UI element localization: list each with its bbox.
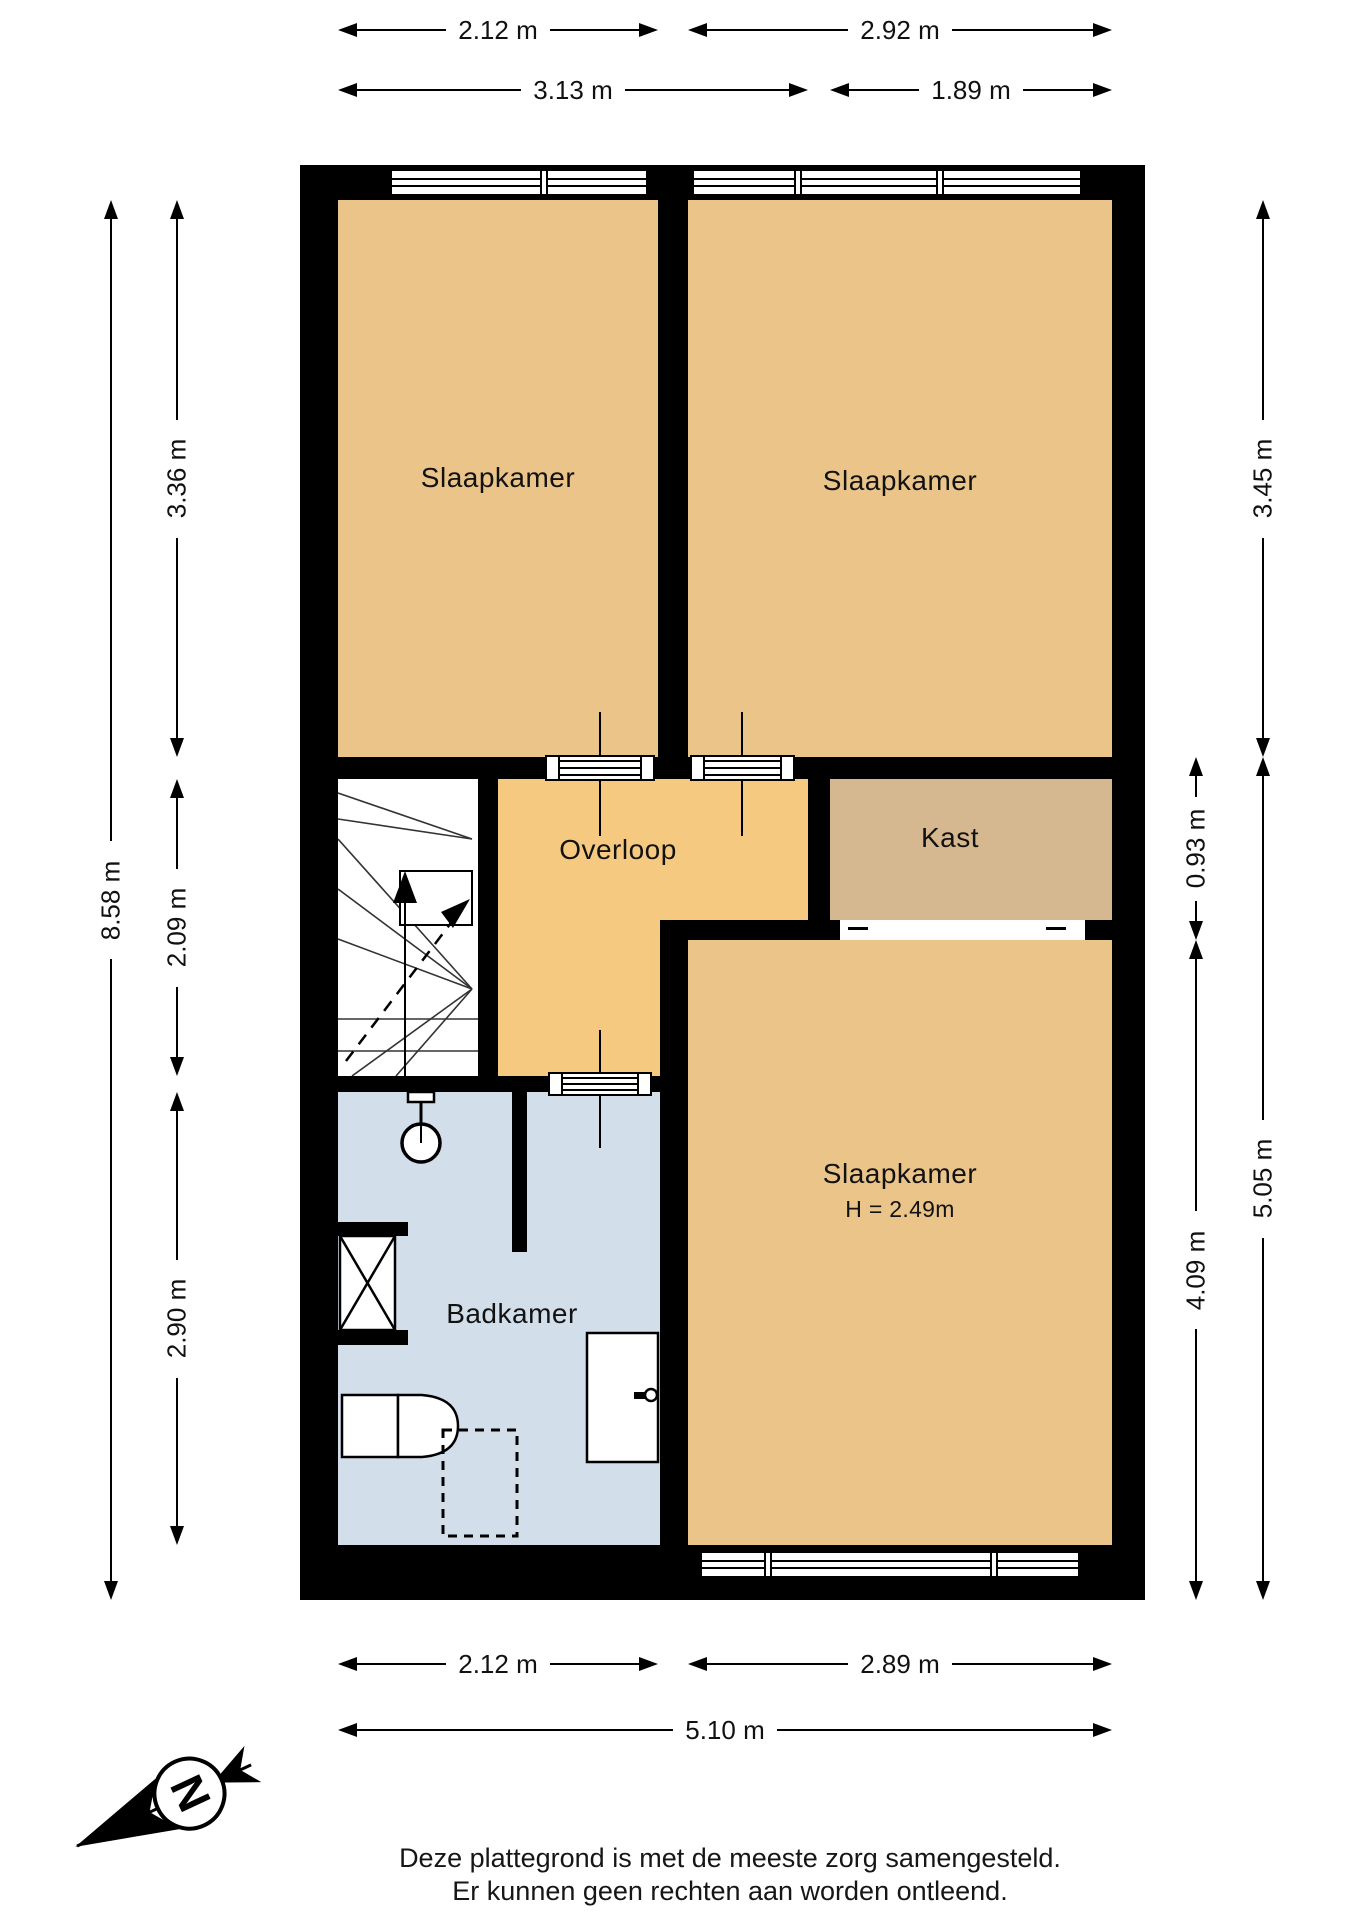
door-bedroom-top-left <box>545 755 655 781</box>
arrow-down-icon <box>170 738 184 757</box>
wall-bathroom-partition <box>512 1090 527 1252</box>
dim-label: 2.92 m <box>848 15 952 46</box>
window-mullion <box>936 171 944 194</box>
arrow-right-icon <box>1093 1723 1112 1737</box>
room-label-closet: Kast <box>921 822 979 854</box>
wall-bedrooms-bottom-c <box>795 757 1112 779</box>
wall-between-bedrooms <box>658 200 688 757</box>
arrow-right-icon <box>789 83 808 97</box>
dim-label: 2.89 m <box>848 1649 952 1680</box>
washbasin-icon <box>587 1333 658 1462</box>
dim-left-total-height: 8.58 m <box>96 200 126 1600</box>
dim-bottom-total-width: 5.10 m <box>338 1717 1112 1743</box>
window-bottom <box>700 1551 1080 1578</box>
room-label-bedroom-bottom-height: H = 2.49m <box>845 1196 954 1223</box>
wall-bedrooms-bottom-b <box>655 757 690 779</box>
arrow-down-icon <box>1189 1581 1203 1600</box>
dim-label: 0.93 m <box>1181 809 1212 889</box>
arrow-left-icon <box>688 1657 707 1671</box>
window-mullion <box>764 1553 772 1576</box>
dim-label: 5.10 m <box>673 1715 777 1746</box>
disclaimer-line-1: Deze plattegrond is met de meeste zorg s… <box>150 1843 1310 1874</box>
window-top-right <box>692 169 1082 196</box>
door-tick <box>741 781 743 836</box>
dim-top-right-section: 1.89 m <box>830 77 1112 103</box>
dim-right-lower-total: 5.05 m <box>1248 757 1278 1600</box>
door-bedroom-top-right <box>690 755 795 781</box>
door-tick <box>599 1030 601 1072</box>
dim-top-bedroom-right: 2.92 m <box>688 17 1112 43</box>
window-mullion <box>990 1553 998 1576</box>
arrow-up-icon <box>1189 757 1203 776</box>
shower-icon <box>402 1092 440 1162</box>
room-label-bedroom-top-right: Slaapkamer <box>823 465 977 497</box>
toilet-icon <box>342 1395 458 1457</box>
wall-closet-bottom-a <box>660 920 840 940</box>
dim-label: 3.45 m <box>1248 439 1279 519</box>
dim-left-bathroom: 2.90 m <box>162 1092 192 1545</box>
door-tick <box>599 712 601 755</box>
dim-left-bedroom: 3.36 m <box>162 200 192 757</box>
room-label-bedroom-top-left: Slaapkamer <box>421 462 575 494</box>
window-mullion <box>794 171 802 194</box>
wall-exterior-right <box>1112 165 1145 1600</box>
arrow-left-icon <box>338 83 357 97</box>
dim-label: 1.89 m <box>919 75 1023 106</box>
door-tick <box>599 781 601 836</box>
dim-left-landing: 2.09 m <box>162 779 192 1076</box>
dim-right-bedroom-bottom: 4.09 m <box>1181 940 1211 1600</box>
arrow-right-icon <box>1093 83 1112 97</box>
dim-label: 2.09 m <box>162 888 193 968</box>
shaft-icon <box>338 1222 408 1345</box>
room-label-bathroom: Badkamer <box>446 1298 578 1330</box>
wall-closet-left <box>808 779 830 940</box>
wall-stairs-right <box>478 779 498 1076</box>
closet-opening-mark-left <box>848 927 868 930</box>
dim-right-closet: 0.93 m <box>1181 757 1211 940</box>
arrow-left-icon <box>338 1723 357 1737</box>
room-label-landing: Overloop <box>559 834 677 866</box>
window-mullion <box>540 171 548 194</box>
arrow-up-icon <box>170 779 184 798</box>
arrow-up-icon <box>104 200 118 219</box>
dim-label: 3.36 m <box>162 439 193 519</box>
arrow-up-icon <box>1256 200 1270 219</box>
dim-top-left-section: 3.13 m <box>338 77 808 103</box>
arrow-up-icon <box>1189 940 1203 959</box>
arrow-down-icon <box>1189 921 1203 940</box>
arrow-down-icon <box>1256 1581 1270 1600</box>
door-tick <box>741 712 743 755</box>
arrow-up-icon <box>1256 757 1270 776</box>
arrow-down-icon <box>170 1057 184 1076</box>
arrow-down-icon <box>1256 738 1270 757</box>
room-bedroom-bottom <box>688 940 1112 1545</box>
arrow-right-icon <box>1093 23 1112 37</box>
arrow-up-icon <box>170 1092 184 1111</box>
closet-opening-mark-right <box>1046 927 1066 930</box>
dim-label: 2.90 m <box>162 1279 193 1359</box>
arrow-left-icon <box>338 23 357 37</box>
dim-label: 8.58 m <box>96 860 127 940</box>
room-label-bedroom-bottom: Slaapkamer <box>823 1158 977 1190</box>
dim-label: 5.05 m <box>1248 1139 1279 1219</box>
staircase <box>338 779 478 1076</box>
arrow-right-icon <box>1093 1657 1112 1671</box>
arrow-left-icon <box>830 83 849 97</box>
dim-top-bedroom-left: 2.12 m <box>338 17 658 43</box>
dim-label: 4.09 m <box>1181 1230 1212 1310</box>
wall-bedrooms-bottom-a <box>338 757 545 779</box>
dim-bottom-bathroom-section: 2.12 m <box>338 1651 658 1677</box>
arrow-down-icon <box>104 1581 118 1600</box>
arrow-left-icon <box>338 1657 357 1671</box>
arrow-down-icon <box>170 1526 184 1545</box>
shower-tray <box>443 1430 517 1536</box>
arrow-left-icon <box>688 23 707 37</box>
window-top-left <box>390 169 648 196</box>
disclaimer-line-2: Er kunnen geen rechten aan worden ontlee… <box>150 1876 1310 1907</box>
dim-label: 3.13 m <box>521 75 625 106</box>
wall-exterior-left <box>300 165 338 1600</box>
room-landing-lower <box>498 920 660 1076</box>
wall-bedroom-bottom-left <box>660 940 688 1545</box>
arrow-right-icon <box>639 23 658 37</box>
dim-right-bedroom-top: 3.45 m <box>1248 200 1278 757</box>
dim-label: 2.12 m <box>446 15 550 46</box>
dim-bottom-bedroom-section: 2.89 m <box>688 1651 1112 1677</box>
arrow-up-icon <box>170 200 184 219</box>
floorplan-canvas: 2.12 m 2.92 m 3.13 m 1.89 m 8.58 m 3.36 … <box>0 0 1358 1920</box>
wall-closet-bottom-b <box>1085 920 1112 940</box>
dim-label: 2.12 m <box>446 1649 550 1680</box>
arrow-right-icon <box>639 1657 658 1671</box>
